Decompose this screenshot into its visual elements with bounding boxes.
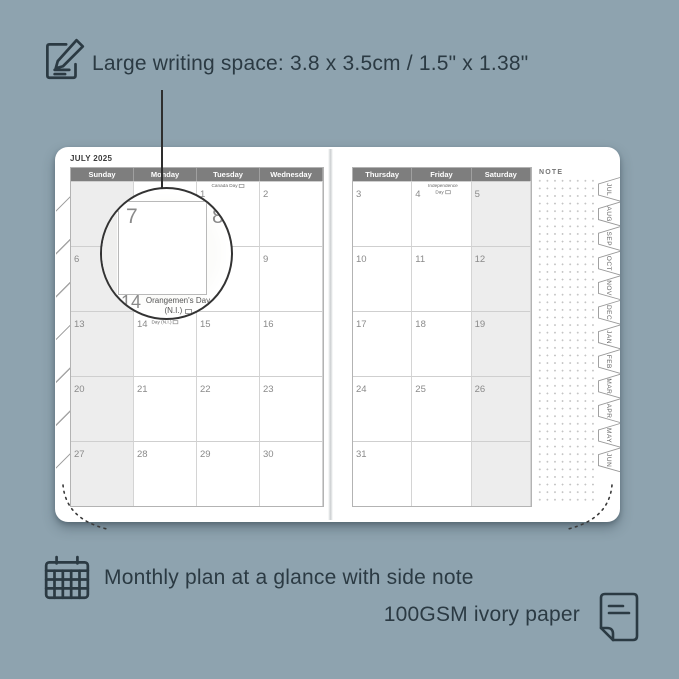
month-tab-label: JUL [605, 183, 612, 196]
calendar-cell: 26 [472, 376, 531, 441]
date-number: 28 [137, 449, 148, 460]
day-header: Friday [412, 168, 471, 181]
magnifier-sunday-shade [102, 189, 117, 318]
month-title: JULY 2025 [70, 154, 112, 163]
date-number: 19 [475, 319, 486, 330]
date-number: 31 [356, 449, 367, 460]
magnifier-circle: 7 8 14 Orangemen's Day (N.I.) [100, 187, 233, 320]
day-header: Saturday [472, 168, 531, 181]
calendar-cell: 12 [472, 246, 531, 311]
calendar-cell: 9 [260, 246, 323, 311]
date-number: 21 [137, 384, 148, 395]
date-number: 4 [415, 189, 420, 200]
bottom-annotation-line2: 100GSM ivory paper [384, 603, 580, 627]
calendar-cell: 24 [353, 376, 412, 441]
calendar-cell: 28 [134, 441, 197, 506]
date-number: 2 [263, 189, 268, 200]
calendar-cell [412, 441, 471, 506]
date-number: 14 [137, 319, 148, 330]
calendar-cell: 14Orangemen's Day (N.I.) [134, 311, 197, 376]
date-number: 15 [200, 319, 211, 330]
note-column-label: NOTE [539, 169, 563, 176]
month-tab-label: MAR [605, 378, 612, 394]
calendar-cell: 15 [197, 311, 260, 376]
day-header: Sunday [71, 168, 134, 181]
calendar-cell: 11 [412, 246, 471, 311]
date-number: 5 [475, 189, 480, 200]
holiday-label: Independence Day [425, 184, 461, 196]
magnified-day-number: 7 [126, 205, 138, 229]
calendar-cell: 31 [353, 441, 412, 506]
calendar-cell: 19 [472, 311, 531, 376]
magnified-next-day-number: 8 [212, 205, 224, 229]
calendar-cell: 23 [260, 376, 323, 441]
calendar-cell: 30 [260, 441, 323, 506]
calendar-cell: 25 [412, 376, 471, 441]
bottom-annotation-line1: Monthly plan at a glance with side note [104, 566, 474, 590]
calendar-cell: 29 [197, 441, 260, 506]
date-number: 10 [356, 254, 367, 265]
flag-icon [185, 309, 192, 314]
date-number: 30 [263, 449, 274, 460]
calendar-grid-icon [42, 554, 92, 604]
month-tab-label: JAN [605, 330, 612, 344]
top-annotation-text: Large writing space: 3.8 x 3.5cm / 1.5" … [92, 52, 528, 76]
date-number: 6 [74, 254, 79, 265]
calendar-cell: 16 [260, 311, 323, 376]
date-number: 3 [356, 189, 361, 200]
date-number: 16 [263, 319, 274, 330]
calendar-cell: 5 [472, 181, 531, 246]
ivory-paper-icon [596, 590, 642, 644]
month-tab-label: DEC [605, 305, 612, 320]
calendar-cell: 3 [353, 181, 412, 246]
date-number: 27 [74, 449, 85, 460]
holiday-label: Canada Day [210, 184, 246, 190]
month-tab-label: AUG [605, 206, 612, 222]
date-number: 13 [74, 319, 85, 330]
date-number: 23 [263, 384, 274, 395]
day-header: Tuesday [197, 168, 260, 181]
right-calendar-grid: ThursdayFridaySaturday34Independence Day… [352, 167, 532, 507]
date-number: 18 [415, 319, 426, 330]
month-tabs: JULAUGSEPOCTNOVDECJANFEBMARAPRMAYJUN [595, 177, 621, 477]
day-header: Thursday [353, 168, 412, 181]
date-number: 22 [200, 384, 211, 395]
month-tab-label: OCT [605, 256, 612, 271]
corner-arc-right [562, 479, 626, 537]
spread-gutter [328, 149, 333, 520]
magnified-holiday-label: Orangemen's Day (N.I.) [140, 296, 216, 317]
date-number: 29 [200, 449, 211, 460]
date-number: 25 [415, 384, 426, 395]
month-tab-label: MAY [605, 428, 612, 443]
date-number: 17 [356, 319, 367, 330]
date-number: 26 [475, 384, 486, 395]
corner-arc-left [49, 479, 113, 537]
month-tab-label: APR [605, 404, 612, 419]
flag-icon [239, 184, 244, 188]
day-header: Wednesday [260, 168, 323, 181]
calendar-cell: 13 [71, 311, 134, 376]
calendar-cell: 18 [412, 311, 471, 376]
calendar-cell: 22 [197, 376, 260, 441]
month-tab-label: JUN [605, 453, 612, 467]
date-number: 9 [263, 254, 268, 265]
calendar-cell [472, 441, 531, 506]
calendar-cell: 2 [260, 181, 323, 246]
magnified-holiday-day-number: 14 [121, 292, 141, 313]
day-header: Monday [134, 168, 197, 181]
month-tab-label: SEP [605, 232, 612, 247]
date-number: 11 [415, 254, 425, 265]
date-number: 12 [475, 254, 486, 265]
calendar-cell: 4Independence Day [412, 181, 471, 246]
date-number: 20 [74, 384, 85, 395]
magnifier-pointer-line [161, 90, 163, 189]
flag-icon [173, 320, 178, 324]
flag-icon [445, 190, 450, 194]
month-tab-label: FEB [605, 355, 612, 369]
calendar-cell: 10 [353, 246, 412, 311]
calendar-cell: 17 [353, 311, 412, 376]
note-dot-grid [536, 177, 598, 505]
calendar-cell: 21 [134, 376, 197, 441]
calendar-cell: 20 [71, 376, 134, 441]
date-number: 24 [356, 384, 367, 395]
month-tab-label: NOV [605, 280, 612, 296]
pencil-note-icon [38, 34, 88, 86]
